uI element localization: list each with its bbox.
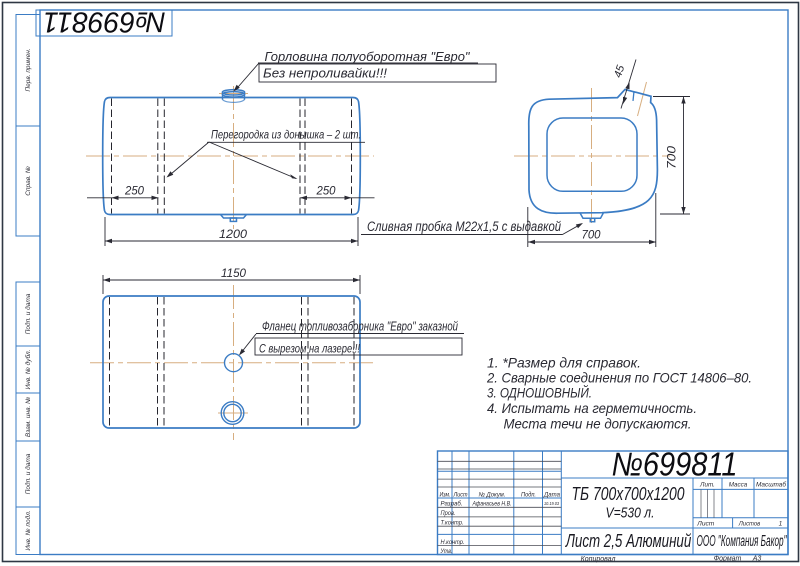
svg-text:Листов: Листов [738,520,761,527]
svg-text:2. Сварные соединения по ГОСТ: 2. Сварные соединения по ГОСТ 14806–80. [486,370,752,386]
svg-text:Афанасьев Н.В.: Афанасьев Н.В. [472,501,512,508]
svg-text:Формат: Формат [714,556,742,563]
svg-text:Копировал: Копировал [581,556,616,563]
svg-text:4. Испытать на герметичность.: 4. Испытать на герметичность. [487,400,697,416]
svg-text:С вырезом на лазере!!!: С вырезом на лазере!!! [259,341,361,355]
svg-text:Фланец топливозаборника "Евро": Фланец топливозаборника "Евро" заказной [262,320,458,334]
svg-text:Масштаб: Масштаб [756,481,786,489]
svg-text:Н.контр.: Н.контр. [441,539,465,546]
svg-text:V=530 л.: V=530 л. [606,505,655,522]
svg-text:250: 250 [124,184,144,198]
svg-text:№699811: №699811 [43,6,166,38]
svg-text:Справ. №: Справ. № [25,166,32,196]
svg-text:Подп.: Подп. [521,491,536,499]
svg-text:Утв.: Утв. [440,548,453,555]
svg-text:1: 1 [779,520,783,527]
svg-text:Взам. инв. №: Взам. инв. № [25,397,32,437]
svg-text:Без непроливайки!!!: Без непроливайки!!! [263,66,387,81]
svg-text:Подп. и дата: Подп. и дата [24,453,32,494]
svg-text:Т.контр.: Т.контр. [441,519,464,526]
svg-text:Лист 2,5 Алюминий: Лист 2,5 Алюминий [565,531,691,551]
svg-text:Перегородка из донышка – 2 шт.: Перегородка из донышка – 2 шт. [211,128,361,142]
svg-text:№699811: №699811 [612,446,738,483]
svg-text:ООО "Компания Бакор": ООО "Компания Бакор" [697,533,788,550]
svg-text:700: 700 [665,146,679,169]
svg-text:Масса: Масса [729,482,748,489]
svg-text:Лист: Лист [453,492,468,499]
svg-text:Подп. и дата: Подп. и дата [24,293,32,334]
svg-text:Инв. № подл.: Инв. № подл. [24,510,32,551]
svg-text:Места течи не допускаются.: Места течи не допускаются. [504,415,692,431]
svg-text:Дата: Дата [543,492,560,499]
svg-text:№ Докум.: № Докум. [479,492,506,499]
svg-text:Инв. № дубл.: Инв. № дубл. [24,349,32,389]
svg-text:250: 250 [316,184,336,198]
svg-text:Разраб.: Разраб. [441,500,463,508]
svg-text:Изм.: Изм. [440,492,451,499]
svg-text:700: 700 [582,228,601,242]
svg-text:1200: 1200 [219,227,247,241]
svg-text:Лит.: Лит. [699,482,715,489]
svg-text:Перв. примен.: Перв. примен. [25,48,32,91]
svg-text:3. ОДНОШОВНЫЙ.: 3. ОДНОШОВНЫЙ. [487,384,592,401]
svg-text:А3: А3 [752,556,762,563]
svg-text:Лист: Лист [696,520,715,527]
svg-text:Сливная пробка М22х1,5 с выдав: Сливная пробка М22х1,5 с выдавкой [367,219,561,234]
svg-text:1150: 1150 [221,266,246,280]
svg-text:1. *Размер для справок.: 1. *Размер для справок. [487,354,641,370]
svg-text:10.19.03: 10.19.03 [544,501,559,507]
svg-text:Горловина полуоборотная "Евро": Горловина полуоборотная "Евро" [265,49,471,64]
svg-text:ТБ 700х700х1200: ТБ 700х700х1200 [572,484,685,504]
svg-text:Пров.: Пров. [441,510,456,517]
